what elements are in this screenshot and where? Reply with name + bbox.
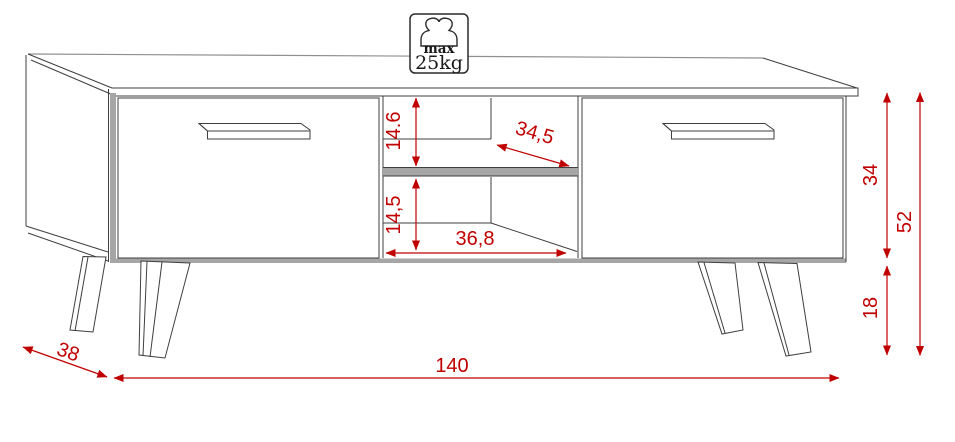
dimension-body-height: 34 (860, 93, 887, 258)
rear-left-leg (70, 257, 106, 333)
badge-weight-label: 25kg (415, 52, 463, 74)
top-left-perspective-edge (28, 54, 112, 88)
dimension-total-depth: 38 (23, 338, 107, 377)
bottom-rail-shade (110, 259, 846, 264)
dimension-total-height: 52 (894, 93, 920, 356)
top-left-inner-edge (31, 60, 113, 95)
right-door (582, 98, 843, 258)
dimension-leg-height: 18 (860, 266, 887, 355)
dim-top-opening-height-label: 14.6 (383, 112, 405, 151)
left-door (118, 98, 379, 258)
max-weight-badge: max 25kg (410, 14, 468, 74)
dim-leg-height-label: 18 (860, 297, 882, 319)
shelf-front-edge (383, 168, 578, 176)
dimension-opening-depth: 34,5 (497, 117, 569, 166)
dim-opening-depth-label: 34,5 (513, 117, 556, 149)
legs (70, 257, 811, 359)
front-left-leg (139, 261, 190, 358)
front-left-corner-shade (110, 93, 116, 259)
dimension-total-width: 140 (114, 355, 839, 378)
rear-right-leg (698, 262, 743, 334)
dim-body-height-label: 34 (860, 164, 882, 186)
furniture-diagram: max 25kg 14.6 14,5 34,5 36,8 38 (0, 0, 955, 442)
dim-total-height-label: 52 (894, 211, 916, 233)
top-right-perspective-edge (763, 58, 857, 88)
dim-total-width-label: 140 (435, 355, 468, 377)
right-door-handle (663, 124, 774, 140)
dim-bottom-opening-height-label: 14,5 (383, 196, 405, 235)
left-door-handle (199, 124, 310, 140)
dimension-bottom-opening-height: 14,5 (383, 179, 416, 250)
dim-opening-width-label: 36,8 (456, 228, 495, 250)
technical-drawing: max 25kg 14.6 14,5 34,5 36,8 38 (0, 0, 955, 442)
dim-total-depth-label: 38 (54, 338, 82, 366)
dimension-top-opening-height: 14.6 (383, 98, 416, 166)
side-panel-bottom-edge (26, 226, 108, 252)
dimension-opening-width: 36,8 (386, 228, 566, 253)
front-right-leg (758, 263, 811, 357)
top-back-edge (28, 54, 763, 58)
top-panel (112, 88, 858, 96)
